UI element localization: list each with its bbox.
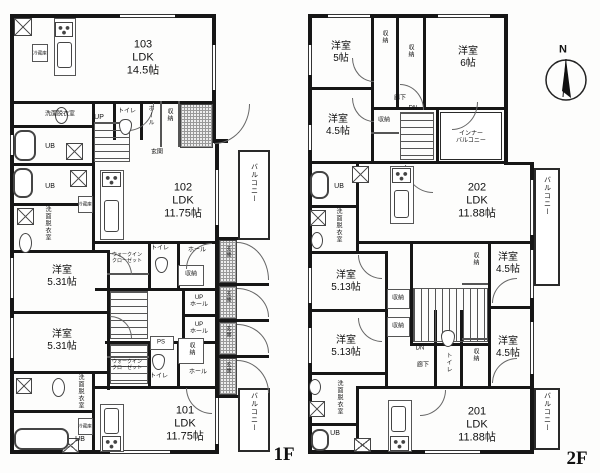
door-arc: [358, 318, 382, 342]
partition: [371, 132, 399, 134]
wall: [423, 14, 426, 110]
wall: [308, 450, 534, 454]
washer-icon: [309, 401, 325, 417]
room-label-closet: 収納: [407, 44, 413, 58]
room-label-inner-balcony: インナー バルコニー: [456, 131, 486, 145]
window: [308, 125, 312, 150]
door-arc: [352, 58, 374, 82]
stove-icon: [392, 168, 411, 183]
bathtub-icon: [311, 429, 329, 451]
room-label-ub: UB: [334, 183, 344, 191]
room-label-closet: 収納: [392, 323, 404, 330]
window: [308, 328, 312, 363]
room-label-202: 202 LDK 11.88帖: [458, 182, 496, 221]
room-label-rouka: 廊下: [417, 362, 429, 369]
door-arc: [352, 98, 374, 122]
door-arc: [492, 278, 517, 303]
washer-icon: [354, 438, 371, 452]
washbasin-icon: [311, 232, 323, 249]
room-label-closet: 収納: [378, 117, 390, 124]
wall: [308, 161, 508, 164]
room-label-yoshitsu: 洋室 5帖: [331, 41, 351, 65]
wall: [356, 241, 533, 244]
room-label-senmen: 洗面脱衣室: [336, 380, 342, 415]
wall: [436, 110, 439, 161]
room-label-balcony: バルコニー: [544, 392, 551, 432]
wall: [308, 309, 387, 312]
kitchen-sink-icon: [391, 406, 406, 432]
door-arc: [492, 358, 517, 383]
floor-caption-2f: 2F: [566, 448, 587, 470]
bathtub-icon: [310, 171, 329, 199]
compass-north-label: N: [559, 44, 567, 57]
room-label-yoshitsu: 洋室 6帖: [458, 46, 478, 70]
window: [438, 14, 490, 18]
stove-icon: [390, 436, 409, 451]
window: [328, 14, 370, 18]
window: [425, 450, 480, 454]
room-label-toilet: トイレ: [445, 352, 451, 373]
wall: [488, 306, 532, 309]
washer-icon: [352, 166, 369, 183]
wall: [488, 243, 491, 388]
wall: [504, 14, 508, 165]
room-label-closet: 収納: [381, 30, 387, 44]
wall: [371, 107, 508, 110]
floor-plan-canvas: 103 LDK 14.5帖 洗面脱衣室 UP トイレ ホール 収納 玄関 UB …: [0, 0, 600, 473]
floor-caption-1f: 1F: [273, 444, 294, 466]
room-label-closet: 収納: [472, 252, 478, 266]
door-arc: [420, 390, 446, 416]
room-label-yoshitsu: 洋室 4.5帖: [496, 336, 520, 360]
wall: [308, 205, 358, 208]
partition: [462, 283, 488, 285]
room-label-yoshitsu: 洋室 4.5帖: [326, 114, 350, 138]
wall: [308, 423, 358, 426]
room-label-yoshitsu: 洋室 5.13帖: [331, 335, 360, 359]
door-arc: [358, 255, 382, 279]
room-label-ub: UB: [330, 430, 340, 438]
room-label-closet: 収納: [392, 295, 404, 302]
window: [530, 322, 534, 374]
washbasin-icon: [309, 379, 321, 395]
window: [308, 268, 312, 303]
washer-icon: [310, 210, 326, 226]
floor-plan-2f: 洋室 5帖 収納 収納 洋室 6帖 廊下 DN 洋室 4.5帖 収納 インナー …: [0, 0, 600, 473]
room-label-201: 201 LDK 11.88帖: [458, 406, 496, 445]
wall: [356, 386, 533, 389]
wall: [308, 251, 388, 254]
stairs-dn-label: DN: [409, 105, 418, 112]
staircase: [400, 112, 434, 160]
room-label-rouka: 廊下: [394, 95, 406, 102]
window: [308, 45, 312, 75]
room-label-yoshitsu: 洋室 5.13帖: [331, 270, 360, 294]
room-label-balcony: バルコニー: [544, 176, 551, 216]
wall: [308, 87, 374, 90]
kitchen-sink-icon: [394, 190, 409, 218]
wall: [308, 372, 387, 375]
room-label-yoshitsu: 洋室 4.5帖: [496, 252, 520, 276]
room-label-senmen: 洗面脱衣室: [335, 208, 341, 243]
stairs-dn-label: DN: [416, 345, 425, 352]
room-label-closet: 収納: [472, 348, 478, 362]
